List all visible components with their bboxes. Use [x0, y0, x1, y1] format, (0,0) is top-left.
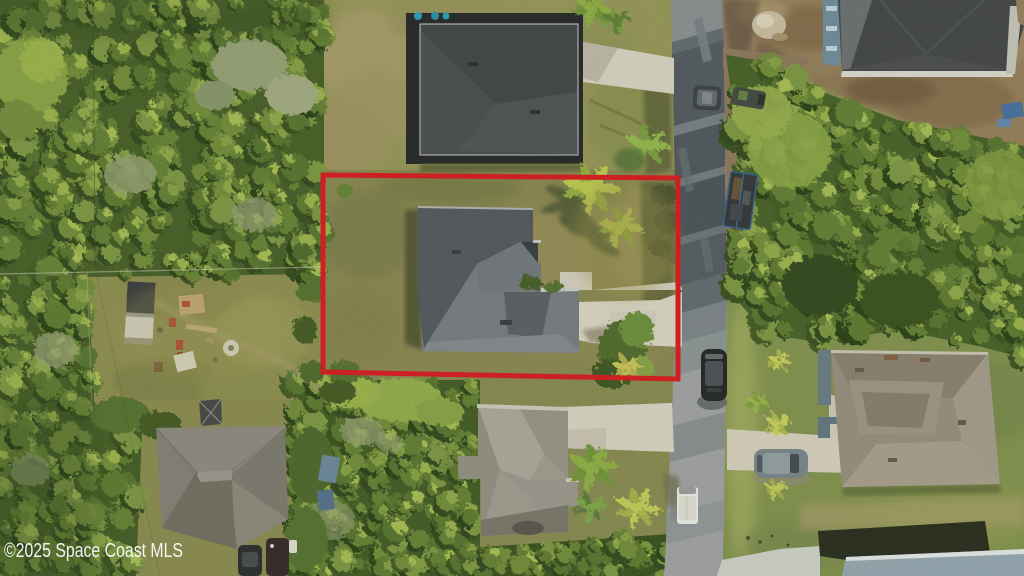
svg-text:©2025 Space Coast MLS: ©2025 Space Coast MLS [4, 540, 183, 562]
